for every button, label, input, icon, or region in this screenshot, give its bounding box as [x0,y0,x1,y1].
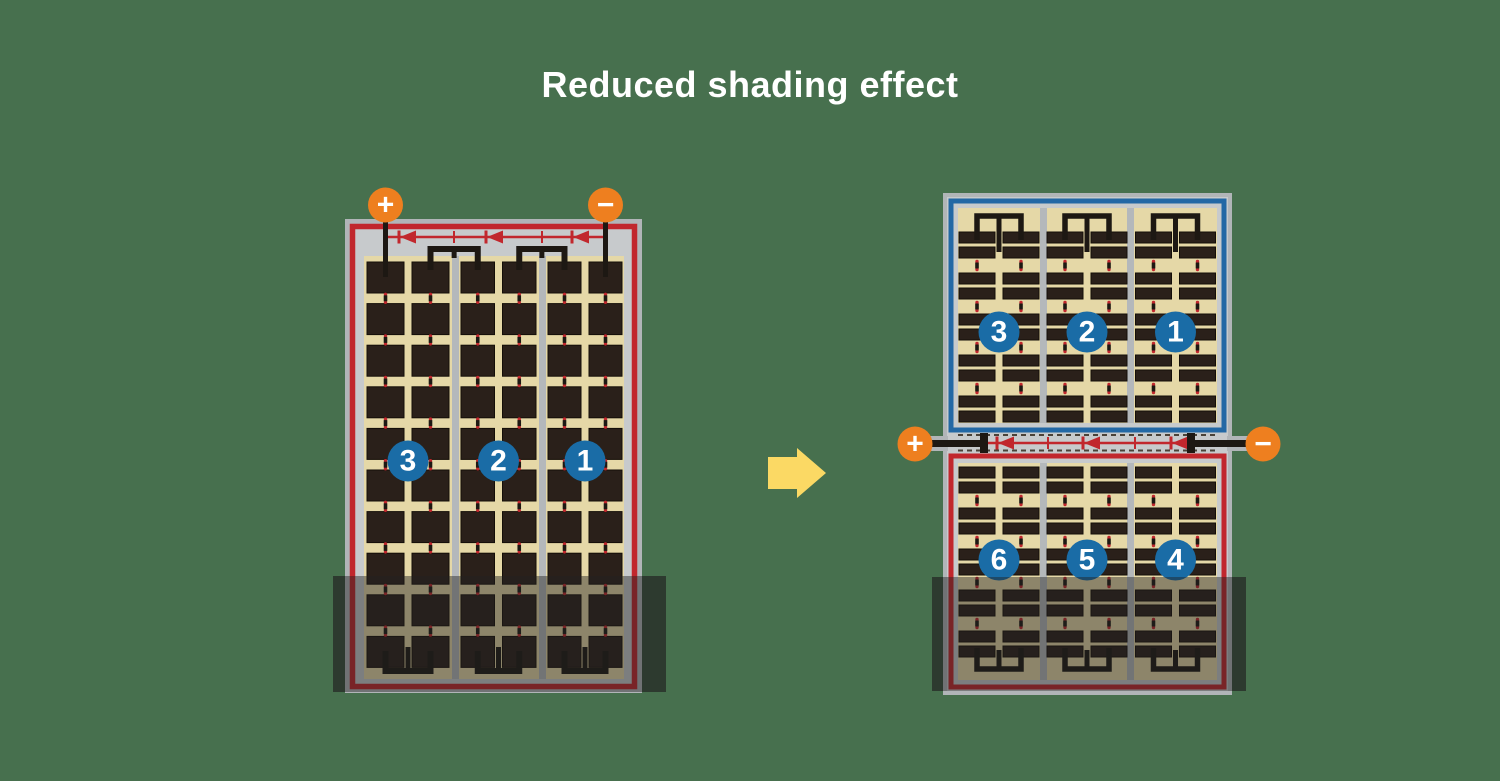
rect [429,420,433,426]
section-number: 5 [1079,544,1096,577]
cell [1047,288,1083,299]
shade-edge [932,577,943,691]
shade-edge [642,576,666,692]
rect [1082,437,1085,450]
cell-connector [1196,495,1200,506]
cell-connector [517,293,521,304]
transform-arrow [768,448,826,498]
cell [1136,411,1172,422]
cell-connector [429,334,433,345]
cell [959,523,995,534]
cell [959,411,995,422]
cell [1180,523,1216,534]
cell [1047,370,1083,381]
cell [1136,396,1172,407]
rect [384,337,388,343]
cell-connector [975,301,979,312]
cell-connector [1063,536,1067,547]
rect [1019,498,1023,504]
rect [476,337,480,343]
diagram-svg: +−321 321654+− [0,0,1500,781]
cell [589,387,622,418]
minus-terminal: − [1246,427,1281,462]
rect [384,545,388,551]
rect [517,420,521,426]
cell-connector [384,417,388,428]
cell-connector [563,334,567,345]
cell-connector [1196,536,1200,547]
cell-connector [563,501,567,512]
rect [1063,498,1067,504]
cell [1136,355,1172,366]
junction-stub [980,433,988,453]
shade-edge [1232,577,1246,691]
rect [1019,386,1023,392]
cell [959,482,995,493]
rect [975,263,979,269]
cell [1136,247,1172,258]
rect [517,503,521,509]
cell [1091,467,1127,478]
cell [959,247,995,258]
rect [1063,345,1067,351]
cell-connector [384,501,388,512]
rect [429,295,433,301]
rect [604,295,608,301]
cell-connector [1019,495,1023,506]
cell [461,512,495,543]
rect [1019,345,1023,351]
cell-connector [1063,260,1067,271]
rect [429,337,433,343]
junction-stub [1187,433,1195,453]
cell [1091,482,1127,493]
column-separator [1127,208,1134,423]
rect [1107,263,1111,269]
cell [461,387,495,418]
rect [1019,539,1023,545]
cell-connector [1063,495,1067,506]
cell [548,345,581,376]
rect [476,545,480,551]
cell [1003,411,1039,422]
cell-connector [1196,301,1200,312]
block-arrow [768,448,826,498]
column-separator [1040,208,1047,423]
cell [1180,467,1216,478]
rect [1063,386,1067,392]
rect [476,420,480,426]
cell-connector [429,542,433,553]
cell [1047,411,1083,422]
cell-connector [563,293,567,304]
right-panel: 321654+− [898,193,1281,695]
section-circle: 1 [1155,312,1196,353]
cell [1047,273,1083,284]
rect [604,545,608,551]
cell-connector [975,342,979,353]
cell-connector [384,459,388,470]
cell-connector [604,501,608,512]
section-number: 4 [1167,544,1184,577]
cell [548,304,581,335]
cell [1047,467,1083,478]
cell [1003,288,1039,299]
section-circle: 1 [565,441,606,482]
cell-connector [517,542,521,553]
cell [412,387,449,418]
cell-connector [517,376,521,387]
cell-connector [1196,383,1200,394]
rect [604,337,608,343]
cell-connector [517,501,521,512]
cell-connector [1152,260,1156,271]
cell [367,387,404,418]
cell [1091,411,1127,422]
cell-connector [476,293,480,304]
cell [589,345,622,376]
cell-connector [604,417,608,428]
cell [1091,355,1127,366]
cell-connector [1019,383,1023,394]
cell-connector [1019,301,1023,312]
cell [503,512,537,543]
cell [412,345,449,376]
rect [1063,263,1067,269]
section-number: 2 [490,445,507,478]
cell [1180,288,1216,299]
rect [517,545,521,551]
section-number: 6 [991,544,1008,577]
cell-connector [1107,301,1111,312]
rect [429,379,433,385]
cell-connector [604,376,608,387]
rect [429,545,433,551]
rect [384,420,388,426]
cell-connector [1019,342,1023,353]
cell-connector [384,376,388,387]
cell [1003,273,1039,284]
cell [1136,467,1172,478]
rect [1063,539,1067,545]
cell [959,467,995,478]
section-number: 2 [1079,316,1096,349]
rect [398,231,401,244]
rect [1152,263,1156,269]
minus-terminal: − [588,188,623,223]
rect [384,295,388,301]
rect [1196,498,1200,504]
cell [1180,396,1216,407]
rect [1107,386,1111,392]
rect [384,503,388,509]
rect [604,503,608,509]
rect [517,295,521,301]
section-number: 1 [577,445,594,478]
shade-overlay [932,577,1246,691]
cell-connector [1152,495,1156,506]
cell-connector [1019,536,1023,547]
rect [476,503,480,509]
cell [1003,523,1039,534]
cell-connector [1107,495,1111,506]
rect [384,462,388,468]
cell-connector [476,542,480,553]
cell [548,387,581,418]
cell-connector [1063,342,1067,353]
rect [571,231,574,244]
rect [1196,539,1200,545]
cell [1091,273,1127,284]
rect [975,386,979,392]
cell-connector [384,334,388,345]
rect [563,295,567,301]
cell [589,512,622,543]
section-circle: 4 [1155,540,1196,581]
rect [975,304,979,310]
rect [1152,539,1156,545]
rect [1196,386,1200,392]
cell-connector [1152,536,1156,547]
cell [503,304,537,335]
cell [959,355,995,366]
section-number: 3 [991,316,1008,349]
rect [604,379,608,385]
diagram-canvas: Reduced shading effect +−321 321654+− [0,0,1500,781]
cell [367,345,404,376]
terminal-sign: + [906,428,924,461]
terminal-sign: + [377,189,395,222]
cell-connector [429,376,433,387]
rect [1152,345,1156,351]
cell [461,345,495,376]
rect [563,545,567,551]
cell [1180,355,1216,366]
cell-connector [1063,301,1067,312]
rect [1152,498,1156,504]
cell-connector [1063,383,1067,394]
cell-connector [1196,342,1200,353]
cell [959,508,995,519]
cell-connector [975,260,979,271]
cell [1180,247,1216,258]
cell [548,512,581,543]
cell [412,512,449,543]
cell [1047,482,1083,493]
cell-connector [563,542,567,553]
cell [1047,355,1083,366]
cell [589,304,622,335]
cell-connector [517,417,521,428]
section-circle: 2 [478,441,519,482]
rect [384,379,388,385]
cell [1180,273,1216,284]
rect [517,337,521,343]
rect [1107,345,1111,351]
cell [1180,482,1216,493]
cell-connector [563,417,567,428]
rect [563,420,567,426]
rect [1196,263,1200,269]
left-panel: +−321 [333,188,666,694]
cell [412,304,449,335]
rect [1019,304,1023,310]
cell-connector [1152,301,1156,312]
rect [604,420,608,426]
cell [1091,523,1127,534]
cell [1091,370,1127,381]
cell-connector [429,459,433,470]
cell [367,512,404,543]
cell [959,370,995,381]
rect [1196,304,1200,310]
rect [476,295,480,301]
rect [1107,304,1111,310]
rect [429,503,433,509]
rect [476,379,480,385]
rect [1152,304,1156,310]
section-circle: 3 [388,441,429,482]
cell [1003,467,1039,478]
section-number: 3 [400,445,417,478]
cell-connector [1019,260,1023,271]
rect [517,379,521,385]
cell [1003,508,1039,519]
cell [1136,508,1172,519]
cell-connector [429,293,433,304]
cell-connector [604,542,608,553]
cell [1091,396,1127,407]
cell-connector [429,417,433,428]
cell [1091,288,1127,299]
cell-connector [476,376,480,387]
cell [1003,370,1039,381]
terminal-wire [926,440,982,447]
cell [503,345,537,376]
cell-connector [604,334,608,345]
rect [1170,437,1173,450]
cell-connector [1107,383,1111,394]
cell-connector [1107,260,1111,271]
cell [1003,396,1039,407]
cell [959,288,995,299]
terminal-sign: − [1254,428,1272,461]
cell [1136,482,1172,493]
rect [1107,498,1111,504]
rect [429,462,433,468]
plus-terminal: + [898,427,933,462]
rect [975,345,979,351]
cell-connector [384,293,388,304]
cell [1180,411,1216,422]
cell-connector [476,501,480,512]
cell-connector [1196,260,1200,271]
cell-connector [429,501,433,512]
rect [485,231,488,244]
terminal-sign: − [597,189,615,222]
rect [563,503,567,509]
shade-overlay [333,576,666,692]
cell-connector [975,495,979,506]
rect [1019,263,1023,269]
section-circle: 5 [1067,540,1108,581]
cell [1003,247,1039,258]
section-circle: 3 [979,312,1020,353]
cell [1047,247,1083,258]
cell [1003,355,1039,366]
cell [1047,396,1083,407]
cell [1003,482,1039,493]
rect [975,539,979,545]
cell [1136,288,1172,299]
rect [1152,386,1156,392]
rect [563,337,567,343]
cell-connector [1107,342,1111,353]
rect [996,437,999,450]
cell [1047,523,1083,534]
cell-connector [1152,383,1156,394]
cell [503,387,537,418]
cell-connector [476,334,480,345]
cell-connector [1107,536,1111,547]
cell [1180,370,1216,381]
shade-edge [333,576,345,692]
plus-terminal: + [368,188,403,223]
cell [959,273,995,284]
cell [1091,247,1127,258]
section-circle: 6 [979,540,1020,581]
cell-connector [476,417,480,428]
cell-connector [604,293,608,304]
rect [1107,539,1111,545]
cell [367,304,404,335]
cell-connector [563,376,567,387]
cell [1091,508,1127,519]
cell [1180,508,1216,519]
cell-connector [384,542,388,553]
cell-connector [975,536,979,547]
cell [1136,370,1172,381]
rect [1063,304,1067,310]
cell-connector [975,383,979,394]
cell-connector [1152,342,1156,353]
cell [959,396,995,407]
section-circle: 2 [1067,312,1108,353]
cell-connector [517,334,521,345]
cell [1136,273,1172,284]
cell [1136,523,1172,534]
rect [975,498,979,504]
rect [563,379,567,385]
section-number: 1 [1167,316,1184,349]
cell [1047,508,1083,519]
rect [1196,345,1200,351]
cell [461,304,495,335]
